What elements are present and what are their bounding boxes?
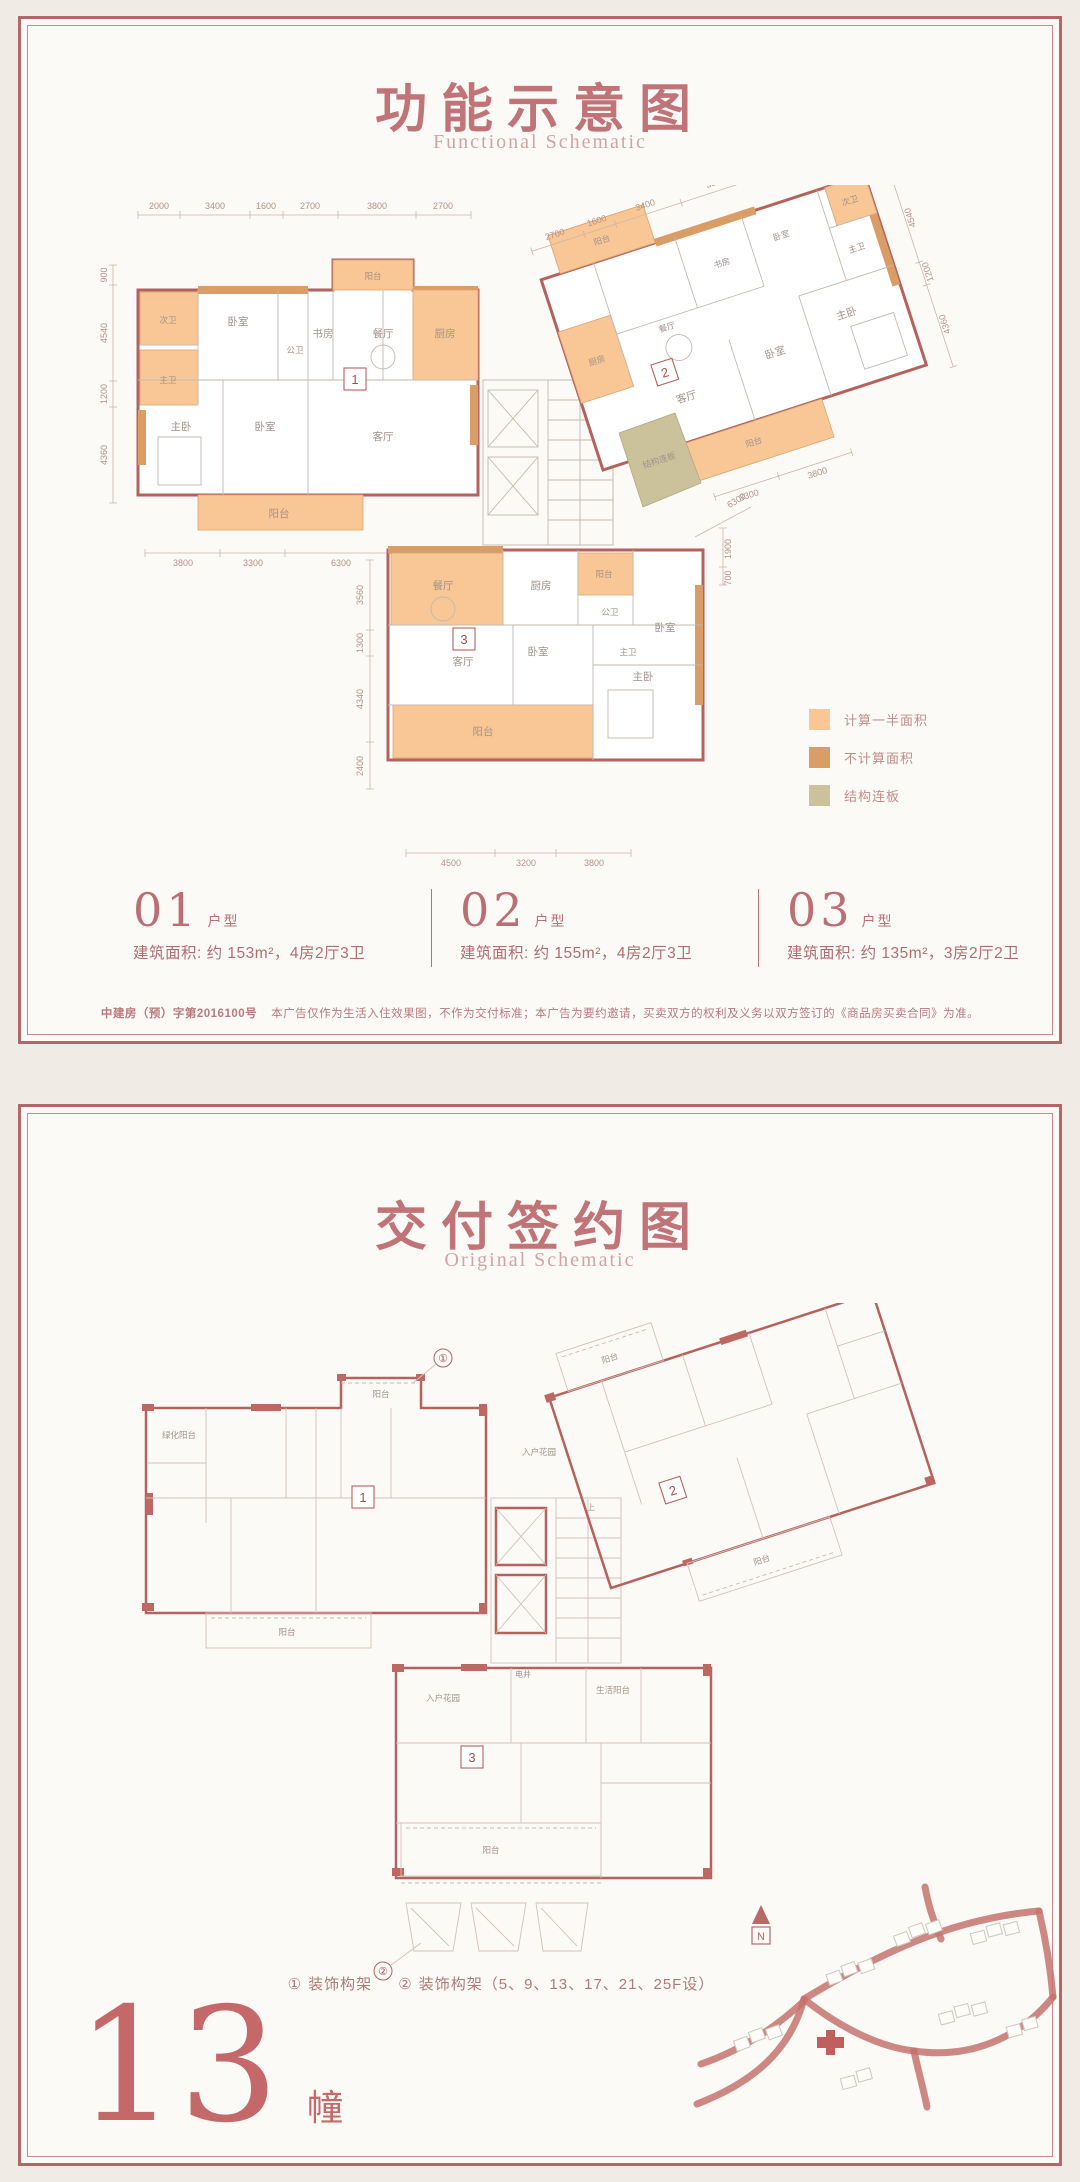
unit-03-summary: 03 户型 建筑面积: 约 135m²，3房2厅2卫: [787, 887, 1067, 967]
svg-text:主卫: 主卫: [619, 647, 637, 657]
unit-01-number: 01: [133, 887, 200, 933]
svg-text:绿化阳台: 绿化阳台: [162, 1430, 196, 1440]
svg-text:卧室: 卧室: [255, 420, 276, 433]
svg-text:3400: 3400: [205, 201, 225, 211]
svg-text:3800: 3800: [806, 465, 828, 481]
svg-text:6300: 6300: [331, 558, 351, 568]
brochure-page: { "page": {"bg_color":"#f0ebe5","panel_b…: [0, 0, 1080, 2182]
svg-text:客厅: 客厅: [373, 430, 394, 443]
permit-code: 中建房（预）字第2016100号: [101, 1008, 257, 1020]
svg-text:阳台: 阳台: [269, 507, 290, 520]
svg-text:4500: 4500: [441, 858, 461, 868]
decorative-frames: [406, 1903, 588, 1951]
svg-text:3200: 3200: [516, 858, 536, 868]
svg-text:主卧: 主卧: [633, 670, 654, 683]
svg-text:4340: 4340: [355, 689, 365, 709]
building-number-unit: 幢: [307, 2087, 343, 2128]
site-buildings: [732, 1917, 1038, 2090]
svg-text:3300: 3300: [738, 487, 760, 503]
unit3-plan: 餐厅 厨房 阳台 公卫 卧室 主卫 客厅 卧室 主卧 阳台 3: [388, 546, 703, 760]
svg-text:生活阳台: 生活阳台: [596, 1685, 630, 1695]
svg-text:2700: 2700: [300, 201, 320, 211]
svg-text:电井: 电井: [515, 1669, 531, 1679]
site-roads: [697, 1887, 1053, 2107]
svg-text:阳台: 阳台: [752, 1553, 771, 1568]
svg-text:1300: 1300: [355, 633, 365, 653]
svg-text:①: ①: [438, 1353, 448, 1365]
panel1-subtitle: Functional Schematic: [21, 131, 1059, 154]
svg-text:主卫: 主卫: [159, 375, 177, 385]
svg-text:上: 上: [587, 1503, 595, 1512]
note2-marker: ②: [398, 1976, 412, 1993]
structural-slab-swatch: [809, 785, 830, 806]
svg-text:公卫: 公卫: [286, 345, 304, 355]
svg-text:3: 3: [460, 632, 467, 647]
svg-text:4540: 4540: [902, 207, 918, 229]
dims-unit3-left: 3560 1300 4340 2400: [355, 560, 374, 789]
dims-top: 2000 3400 1600 2700 3800 2700: [138, 201, 471, 219]
svg-text:3300: 3300: [243, 558, 263, 568]
svg-text:阳台: 阳台: [278, 1627, 295, 1637]
unit1-outline: 绿化阳台 阳台 阳台 1 ①: [142, 1349, 487, 1648]
unit-02-number: 02: [460, 887, 527, 933]
svg-text:卧室: 卧室: [655, 621, 676, 634]
svg-text:入户花园: 入户花园: [522, 1447, 556, 1457]
svg-text:厨房: 厨房: [435, 327, 456, 340]
svg-text:次卫: 次卫: [159, 315, 177, 325]
svg-text:餐厅: 餐厅: [433, 579, 454, 592]
svg-text:阳台: 阳台: [600, 1351, 619, 1366]
disclaimer: 中建房（预）字第2016100号本广告仅作为生活入住效果图，不作为交付标准；本广…: [21, 1005, 1059, 1021]
divider: [431, 889, 432, 967]
unit1-plan: 次卫 卧室 公卫 书房 餐厅 阳台 厨房 主卫 主卧 卧室 客厅 阳台 1: [138, 260, 478, 530]
legend: 计算一半面积 不计算面积 结构连板: [809, 709, 928, 823]
svg-text:1600: 1600: [256, 201, 276, 211]
svg-text:4540: 4540: [99, 323, 109, 343]
svg-text:书房: 书房: [313, 327, 334, 340]
legend-item-not-counted: 不计算面积: [809, 747, 928, 768]
functional-schematic-panel: 功能示意图 Functional Schematic 2000 3400 160…: [18, 16, 1062, 1044]
svg-text:入户花园: 入户花园: [426, 1693, 460, 1703]
svg-text:卧室: 卧室: [528, 645, 549, 658]
unit2-outline: 阳台 阳台 2: [533, 1303, 947, 1627]
north-arrow-icon: N: [752, 1905, 770, 1944]
svg-text:3560: 3560: [355, 585, 365, 605]
unit3-outline: 入户花园 生活阳台 阳台 3 ②: [374, 1664, 711, 1980]
panel2-subtitle: Original Schematic: [21, 1249, 1059, 1272]
svg-text:4360: 4360: [99, 445, 109, 465]
unit-01-summary: 01 户型 建筑面积: 约 153m²，4房2厅3卫: [133, 887, 413, 967]
dims-left: 900 4540 1200 4360: [99, 265, 117, 503]
svg-text:阳台: 阳台: [482, 1845, 499, 1855]
dims-bottom: 4500 3200 3800: [406, 849, 631, 868]
legend-item-half-area: 计算一半面积: [809, 709, 928, 730]
svg-text:主卧: 主卧: [171, 420, 192, 433]
original-schematic-panel: 交付签约图 Original Schematic 绿化阳台 阳台 阳台 1 ①: [18, 1104, 1062, 2166]
svg-text:阳台: 阳台: [473, 725, 494, 738]
svg-text:3: 3: [468, 1750, 475, 1765]
dims-bottom-left: 3800 3300 6300: [145, 549, 396, 568]
svg-text:4360: 4360: [937, 313, 953, 335]
svg-text:厨房: 厨房: [531, 579, 552, 592]
svg-text:1200: 1200: [99, 384, 109, 404]
svg-text:公卫: 公卫: [601, 607, 619, 617]
svg-text:2700: 2700: [433, 201, 453, 211]
core-outline: 上 电井: [491, 1498, 621, 1679]
unit-02-desc: 建筑面积: 约 155m²，4房2厅3卫: [460, 941, 730, 963]
divider: [758, 889, 759, 967]
not-counted-swatch: [809, 747, 830, 768]
svg-text:N: N: [757, 1931, 765, 1943]
svg-text:3800: 3800: [584, 858, 604, 868]
svg-text:客厅: 客厅: [453, 655, 474, 668]
svg-text:阳台: 阳台: [372, 1389, 389, 1399]
building-number: 13幢: [76, 1987, 343, 2145]
svg-text:2400: 2400: [355, 756, 365, 776]
svg-text:阳台: 阳台: [595, 569, 612, 579]
svg-text:1: 1: [359, 1490, 366, 1505]
svg-text:阳台: 阳台: [364, 271, 381, 281]
svg-text:3800: 3800: [367, 201, 387, 211]
svg-text:700: 700: [723, 570, 733, 585]
svg-text:餐厅: 餐厅: [373, 327, 394, 340]
building-13-highlight: [817, 2030, 844, 2055]
svg-text:2000: 2000: [149, 201, 169, 211]
unit-02-summary: 02 户型 建筑面积: 约 155m²，4房2厅3卫: [460, 887, 740, 967]
unit-summary-row: 01 户型 建筑面积: 约 153m²，4房2厅3卫 02 户型 建筑面积: 约…: [133, 887, 1067, 967]
building-number-value: 13: [76, 1974, 281, 2158]
unit-03-number: 03: [787, 887, 854, 933]
half-area-swatch: [809, 709, 830, 730]
svg-text:900: 900: [99, 267, 109, 282]
legend-item-structural-slab: 结构连板: [809, 785, 928, 806]
site-map: N: [689, 1879, 1059, 2119]
svg-text:1200: 1200: [920, 261, 936, 283]
unit-01-desc: 建筑面积: 约 153m²，4房2厅3卫: [133, 941, 403, 963]
svg-text:1: 1: [351, 372, 358, 387]
svg-text:1900: 1900: [723, 539, 733, 559]
svg-text:3800: 3800: [173, 558, 193, 568]
svg-text:卧室: 卧室: [228, 315, 249, 328]
unit2-plan: 阳台 厨房 餐厅 书房 卧室 次卫 主卫 主卧 卧室 客厅 阳台 2 2700 …: [528, 185, 983, 540]
unit-03-desc: 建筑面积: 约 135m²，3房2厅2卫: [787, 941, 1057, 963]
